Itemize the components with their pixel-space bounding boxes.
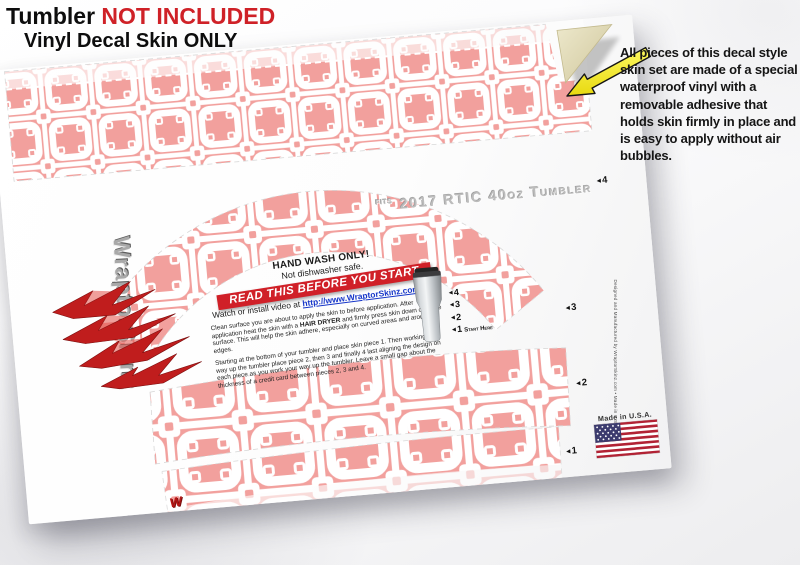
- vinyl-decal-only-line: Vinyl Decal Skin ONLY: [6, 30, 275, 52]
- fine-print: Designed and Manufactured by WraptorSkin…: [613, 279, 618, 419]
- piece-marker-3: ◄3: [564, 302, 577, 314]
- page-background: FITS 2017 RTIC 40oz Tumbler ◄4 ◄3 ◄2 ◄1 …: [0, 0, 800, 565]
- piece-marker-4: ◄4: [595, 175, 608, 187]
- adhesive-annotation-text: All pieces of this decal style skin set …: [620, 44, 800, 164]
- us-flag-icon: [594, 419, 661, 458]
- brand-w-mark: W: [168, 493, 183, 510]
- piece-marker-1: ◄1: [564, 445, 577, 457]
- tumbler-body: [413, 275, 447, 342]
- piece-marker-2: ◄2: [574, 377, 587, 389]
- tumbler-image: [408, 265, 451, 346]
- not-included-highlight: NOT INCLUDED: [101, 3, 275, 29]
- claw-marks-icon: [46, 267, 238, 404]
- header: Tumbler NOT INCLUDED Vinyl Decal Skin ON…: [6, 4, 275, 52]
- decal-sheet: FITS 2017 RTIC 40oz Tumbler ◄4 ◄3 ◄2 ◄1 …: [0, 15, 672, 524]
- fits-prefix: FITS: [375, 198, 393, 206]
- tumbler-piece-legend: ◄4 ◄3 ◄2 ◄1Start Here: [447, 284, 493, 337]
- tumbler-not-included-line: Tumbler NOT INCLUDED: [6, 4, 275, 30]
